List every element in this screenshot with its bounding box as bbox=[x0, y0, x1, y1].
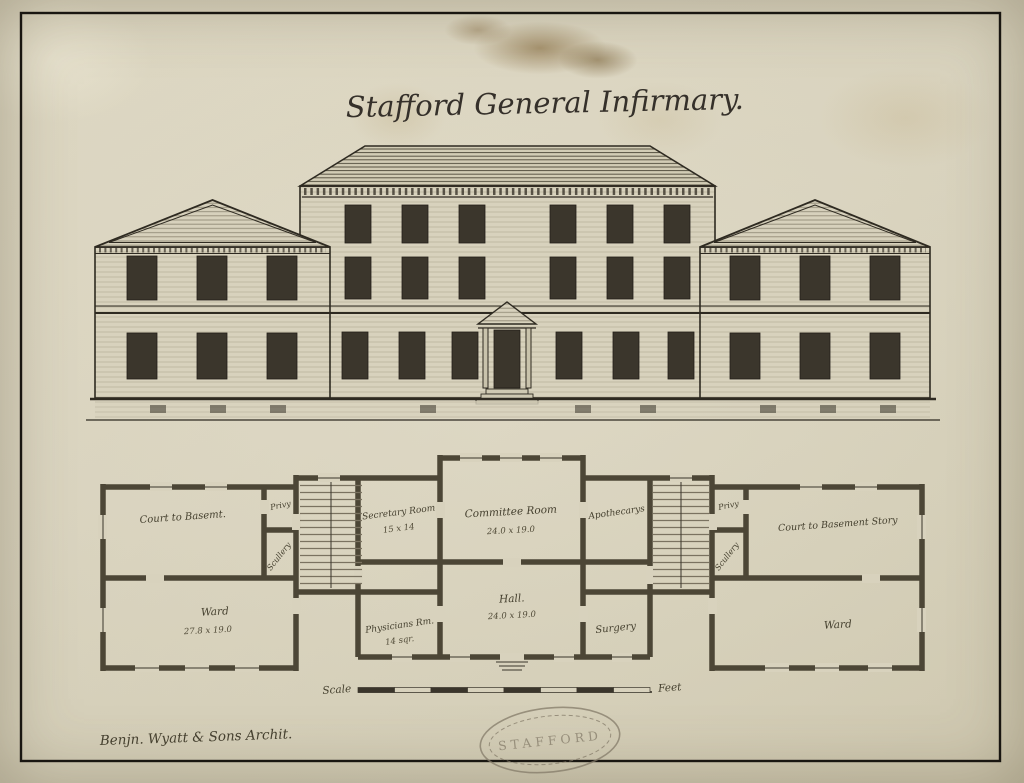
room-label-court-left: Court to Basemt. bbox=[139, 509, 226, 526]
front-door bbox=[494, 330, 520, 388]
room-label-privy-left: Privy bbox=[268, 499, 292, 512]
staircase-right bbox=[653, 482, 709, 588]
architect-signature: Benjn. Wyatt & Sons Archit. bbox=[99, 726, 293, 749]
room-dims-ward-left: 27.8 x 19.0 bbox=[183, 625, 233, 638]
room-label-surgery: Surgery bbox=[595, 621, 637, 636]
plan-entrance-steps bbox=[496, 662, 528, 670]
scale-bar: Scale Feet bbox=[322, 681, 683, 697]
room-label-scullery-left: Scullery bbox=[265, 540, 293, 572]
plinth-base bbox=[86, 399, 940, 420]
room-dims-secretary: 15 x 14 bbox=[382, 522, 415, 536]
room-dims-hall: 24.0 x 19.0 bbox=[487, 610, 537, 623]
entrance-steps bbox=[486, 389, 528, 394]
room-label-scullery-right: Scullery bbox=[713, 540, 741, 572]
scale-label: Scale bbox=[322, 683, 352, 697]
feet-label: Feet bbox=[657, 681, 683, 695]
room-label-privy-right: Privy bbox=[716, 499, 740, 512]
page-title: Stafford General Infirmary. bbox=[345, 82, 744, 124]
room-dims-committee: 24.0 x 19.0 bbox=[486, 525, 536, 538]
plan-room-labels: Court to Basemt. Privy Scullery Ward 27.… bbox=[139, 499, 898, 648]
room-label-physicians: Physicians Rm. bbox=[364, 616, 435, 636]
floor-plan: Court to Basemt. Privy Scullery Ward 27.… bbox=[98, 453, 926, 672]
room-label-committee: Committee Room bbox=[464, 504, 557, 521]
elevation-drawing bbox=[86, 146, 940, 420]
library-stamp: STAFFORD bbox=[477, 701, 623, 779]
plan-door-openings bbox=[146, 500, 880, 662]
stamp-text: STAFFORD bbox=[497, 728, 602, 754]
engraving-canvas: Stafford General Infirmary. bbox=[0, 0, 1024, 783]
room-label-hall: Hall. bbox=[498, 592, 525, 605]
room-dims-physicians: 14 sqr. bbox=[385, 634, 415, 648]
room-label-court-right: Court to Basement Story bbox=[778, 515, 899, 534]
room-label-apothecarys: Apothecarys bbox=[587, 504, 646, 522]
room-label-ward-right: Ward bbox=[824, 618, 853, 631]
room-label-secretary: Secretary Room bbox=[362, 504, 436, 523]
room-label-ward-left: Ward bbox=[201, 605, 230, 618]
staircase-left bbox=[300, 482, 362, 588]
scale-bar-segments bbox=[358, 688, 650, 693]
